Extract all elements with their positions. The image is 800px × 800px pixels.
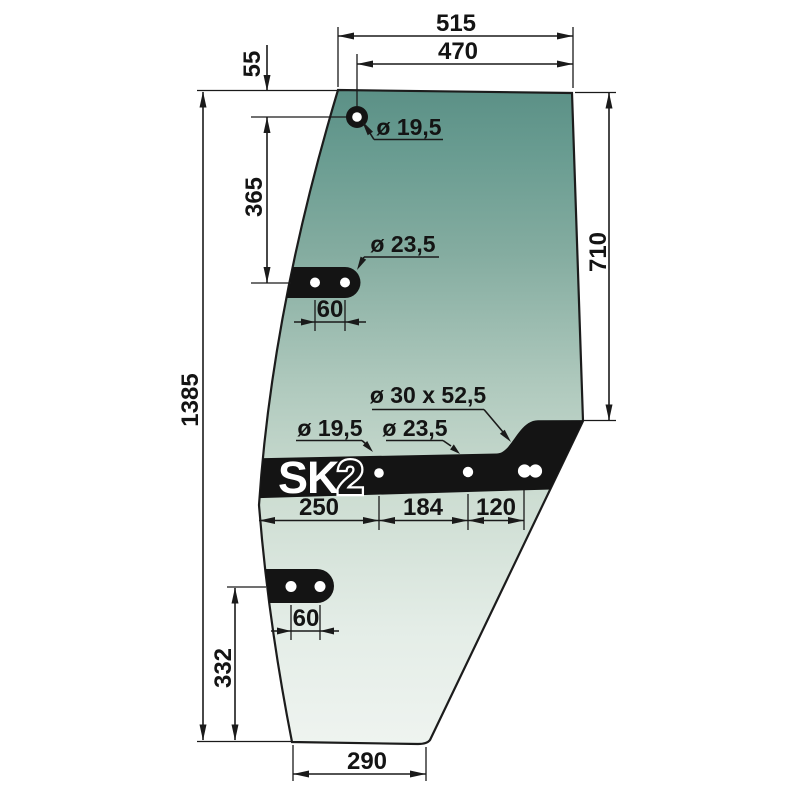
dim-710: 710 xyxy=(585,93,613,421)
band-hole-left xyxy=(374,468,384,478)
upper-bracket-hole-right xyxy=(340,278,350,288)
dim-290-value: 290 xyxy=(347,748,387,775)
dim-1385: 1385 xyxy=(177,92,207,741)
dim-55: 55 xyxy=(239,45,271,133)
dim-332: 332 xyxy=(210,588,239,741)
dim-184-value: 184 xyxy=(403,494,444,521)
lower-bracket-hole-right xyxy=(315,581,326,592)
label-band-slot-text: ø 30 x 52,5 xyxy=(370,382,487,408)
door-glass-drawing: SK 2 515 470 xyxy=(0,0,800,800)
arrowhead xyxy=(200,725,207,741)
dim-55-value: 55 xyxy=(239,51,266,78)
dim-515-value: 515 xyxy=(436,10,476,37)
technical-drawing-page: SK 2 515 470 xyxy=(0,0,800,800)
dim-332-value: 332 xyxy=(210,648,237,688)
dim-365: 365 xyxy=(241,117,271,283)
band-slot-right-lobe xyxy=(529,464,542,477)
dim-120-value: 120 xyxy=(476,494,516,521)
dim-470: 470 xyxy=(357,38,573,68)
arrowhead xyxy=(264,267,271,283)
dim-1385-value: 1385 xyxy=(177,373,204,426)
arrowhead xyxy=(357,61,373,68)
dim-470-value: 470 xyxy=(438,38,478,65)
arrowhead xyxy=(293,771,309,778)
arrowhead xyxy=(232,725,239,741)
arrowhead xyxy=(200,92,207,108)
arrowhead xyxy=(606,93,613,109)
dim-250-value: 250 xyxy=(299,494,339,521)
arrowhead xyxy=(557,61,573,68)
arrowhead xyxy=(557,33,573,40)
dim-365-value: 365 xyxy=(241,177,268,217)
label-upper-bracket-text: ø 23,5 xyxy=(370,231,435,257)
dim-710-value: 710 xyxy=(585,232,612,272)
label-band-hole-mid-text: ø 23,5 xyxy=(382,415,447,441)
logo-model-text: 2 xyxy=(337,452,364,505)
arrowhead xyxy=(410,771,426,778)
dim-60-upper-value: 60 xyxy=(317,296,344,323)
dim-290: 290 xyxy=(293,748,426,778)
band-hole-mid xyxy=(463,467,473,477)
label-band-hole-left-text: ø 19,5 xyxy=(297,415,362,441)
dim-60-lower-value: 60 xyxy=(293,605,320,632)
arrowhead xyxy=(232,588,239,604)
arrowhead xyxy=(606,405,613,421)
label-top-hole-text: ø 19,5 xyxy=(376,114,441,140)
arrowhead xyxy=(338,33,354,40)
upper-bracket-hole-left xyxy=(310,278,320,288)
lower-bracket-hole-left xyxy=(286,581,297,592)
dim-515: 515 xyxy=(338,10,573,40)
top-hole-center xyxy=(352,112,362,122)
